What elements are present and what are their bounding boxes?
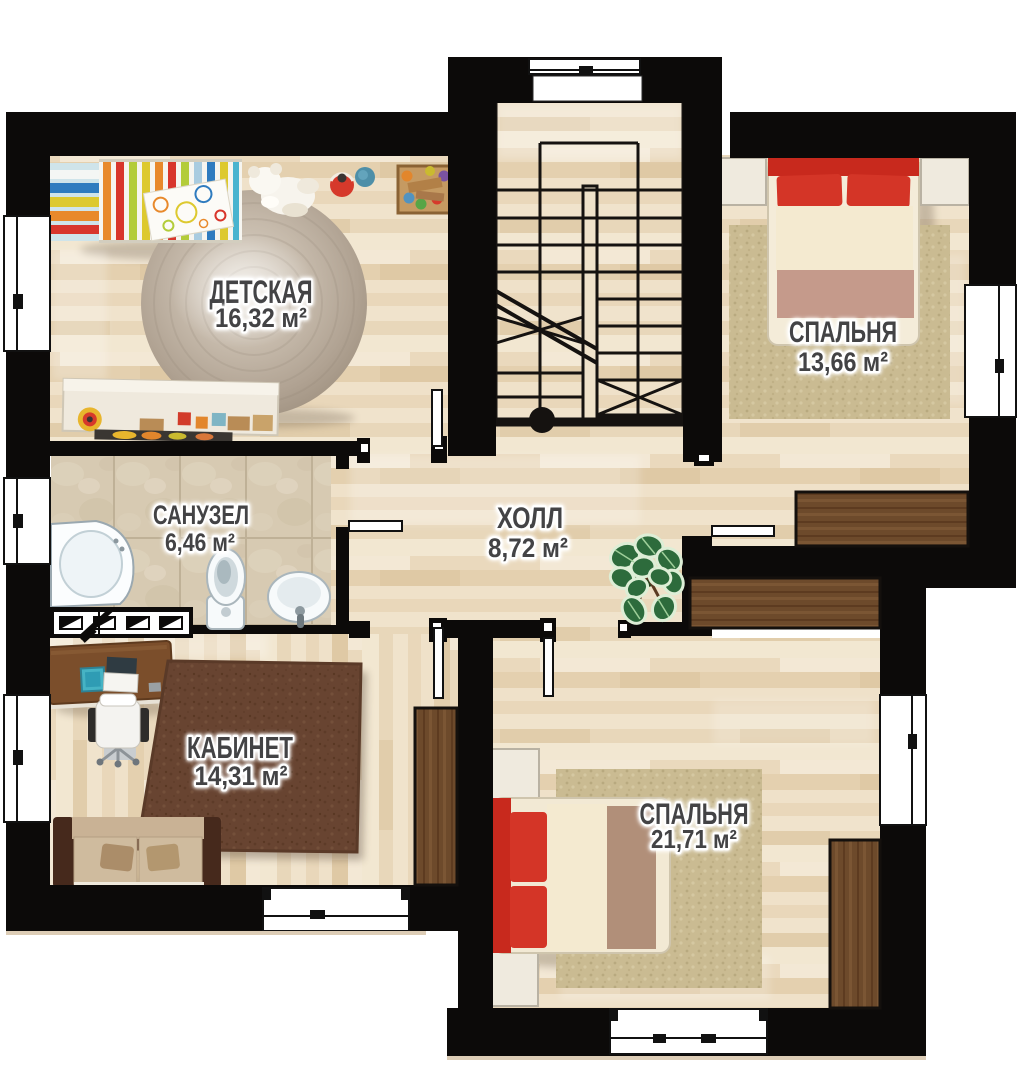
svg-text:6,46 м²: 6,46 м² (165, 529, 235, 557)
svg-text:13,66 м²: 13,66 м² (798, 347, 888, 377)
svg-text:8,72 м²: 8,72 м² (488, 533, 568, 563)
svg-text:КАБИНЕТ: КАБИНЕТ (187, 730, 293, 765)
svg-text:14,31 м²: 14,31 м² (195, 761, 288, 791)
svg-text:21,71 м²: 21,71 м² (651, 824, 737, 854)
svg-text:ХОЛЛ: ХОЛЛ (497, 502, 563, 535)
svg-text:СПАЛЬНЯ: СПАЛЬНЯ (789, 316, 897, 349)
svg-text:САНУЗЕЛ: САНУЗЕЛ (153, 500, 249, 530)
svg-text:16,32 м²: 16,32 м² (215, 303, 307, 333)
